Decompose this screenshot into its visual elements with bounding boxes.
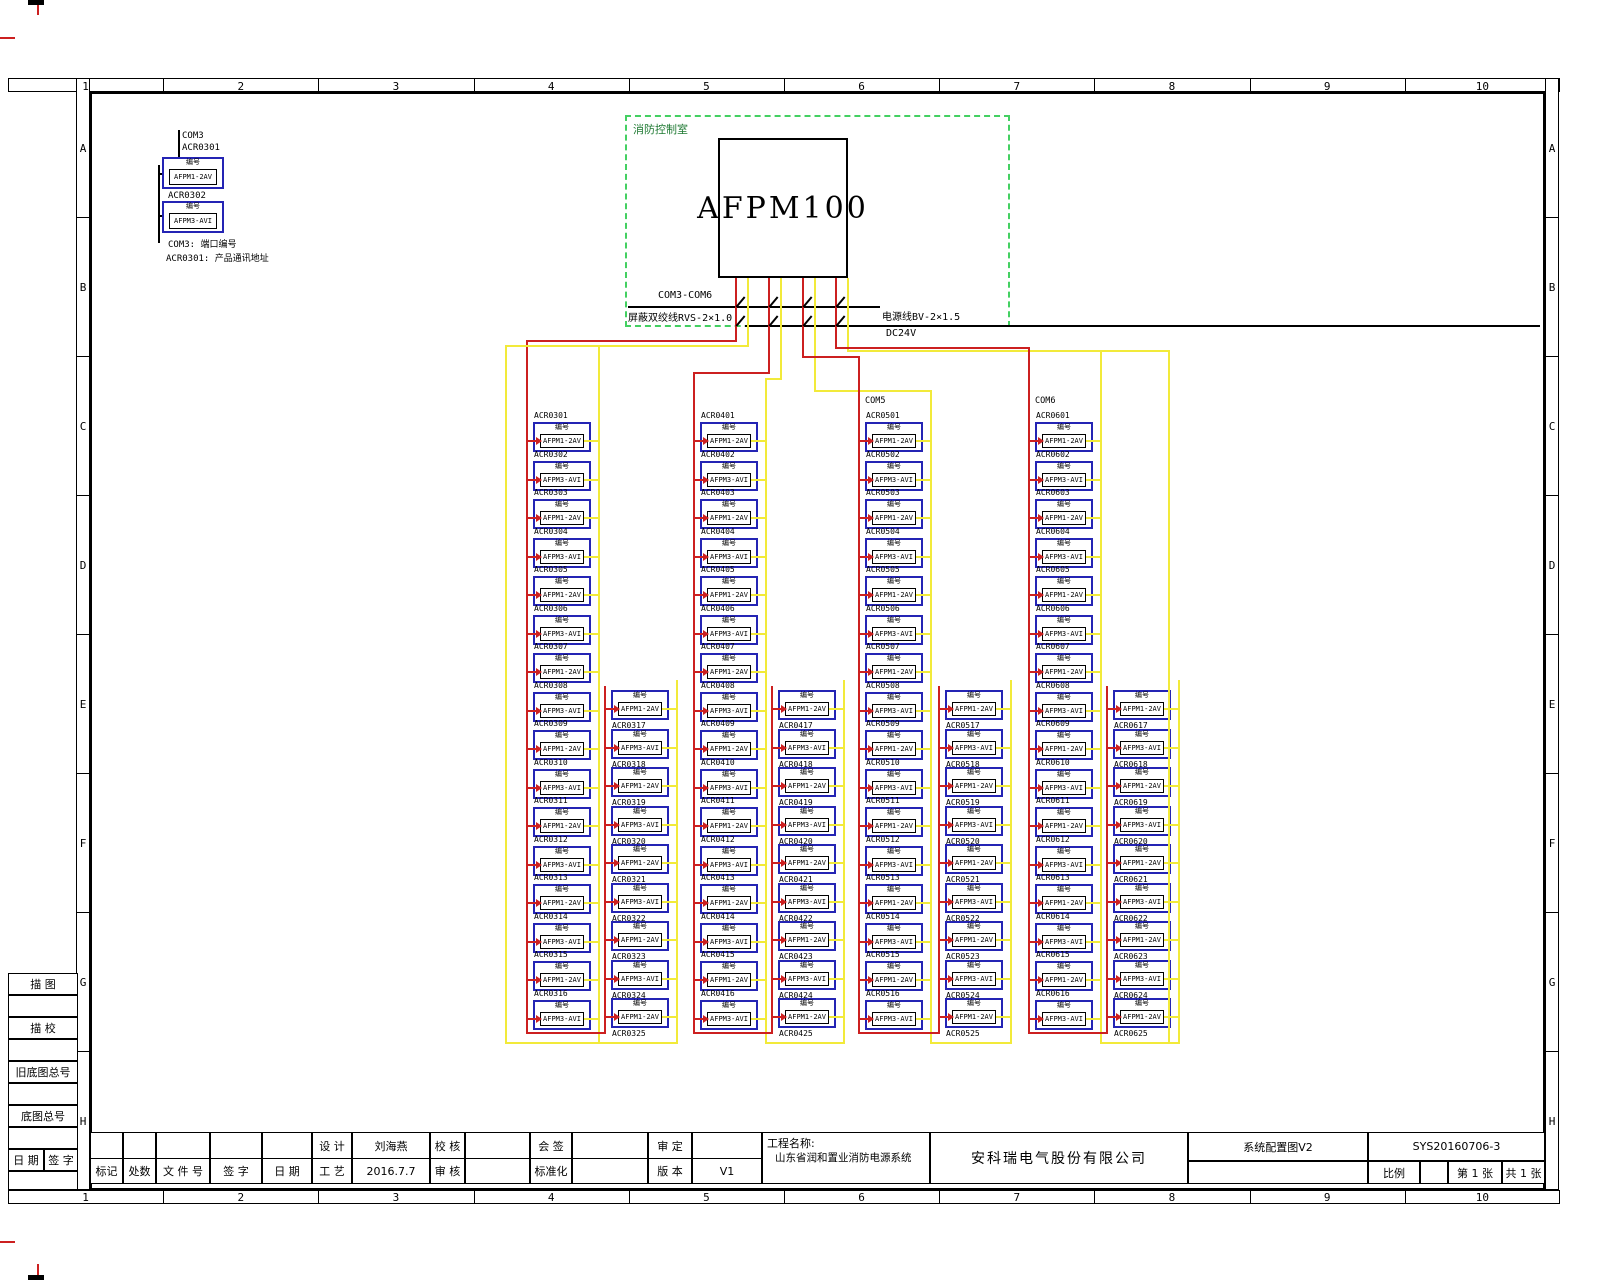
signal-arrowhead [703, 668, 709, 676]
title-block-cell: 审 定 [648, 1132, 692, 1159]
power-wire-segment [996, 1016, 1010, 1018]
device-id-label: ACR0308 [534, 681, 612, 691]
signal-wire-segment [735, 278, 737, 340]
device-model: AFPM1-2AV [872, 743, 916, 755]
power-wire-segment [584, 710, 598, 712]
device-model: AFPM3-AVI [872, 859, 916, 871]
legend-wire [158, 165, 160, 243]
signal-arrowhead [1038, 553, 1044, 561]
device-id-label: ACR0503 [866, 488, 944, 498]
legend: COM3 ACR0301 编号 AFPM1-2AV ACR0302 编号 AFP… [140, 125, 340, 260]
grid-number: 7 [939, 80, 1094, 92]
device-id-label: ACR0606 [1036, 604, 1114, 614]
grid-number: 4 [474, 80, 629, 92]
device-tag-label: 编号 [714, 1001, 744, 1010]
power-wire-segment [1164, 862, 1178, 864]
signal-wire-segment [802, 356, 860, 358]
device-model: AFPM1-2AV [540, 666, 584, 678]
device-id-label: ACR0604 [1036, 527, 1114, 537]
device-tag-label: 编号 [959, 691, 989, 700]
com-range-label: COM3-COM6 [658, 290, 712, 301]
device-model: AFPM1-2AV [785, 934, 829, 946]
control-room-label: 消防控制室 [633, 121, 688, 137]
grid-number: 7 [939, 1191, 1094, 1203]
device-model: AFPM1-2AV [1120, 934, 1164, 946]
signal-bus-line [628, 306, 880, 308]
grid-letter: D [1545, 559, 1559, 571]
power-wire-segment [1164, 708, 1178, 710]
legend-device-model: AFPM1-2AV [169, 171, 217, 183]
device-tag-label: 编号 [714, 847, 744, 856]
device-tag-label: 编号 [547, 616, 577, 625]
device-tag-label: 编号 [959, 730, 989, 739]
signal-arrowhead [868, 476, 874, 484]
power-wire-segment [662, 862, 676, 864]
device-model: AFPM3-AVI [1042, 1013, 1086, 1025]
device-tag-label: 编号 [714, 731, 744, 740]
title-block-cell: 校 核 [430, 1132, 465, 1159]
signal-arrowhead [868, 668, 874, 676]
signal-arrowhead [1116, 705, 1122, 713]
title-block-cell [262, 1132, 312, 1159]
device-tag-label: 编号 [879, 654, 909, 663]
grid-tick [318, 1190, 319, 1204]
grid-number: 6 [784, 1191, 939, 1203]
signal-wire-segment [526, 1032, 606, 1034]
device-model: AFPM1-2AV [707, 435, 751, 447]
device-model: AFPM1-2AV [952, 934, 996, 946]
signal-arrowhead [868, 437, 874, 445]
device-id-label: ACR0607 [1036, 642, 1114, 652]
grid-tick [1545, 356, 1559, 357]
signal-arrowhead [868, 976, 874, 984]
device-tag-label: 编号 [1127, 999, 1157, 1008]
device-model: AFPM1-2AV [540, 820, 584, 832]
signal-arrowhead [868, 591, 874, 599]
power-wire-segment [662, 978, 676, 980]
device-id-label: ACR0505 [866, 565, 944, 575]
grid-tick [163, 1190, 164, 1204]
signal-arrowhead [948, 744, 954, 752]
device-id-label: ACR0625 [1114, 1029, 1192, 1039]
power-wire-segment [1086, 941, 1100, 943]
grid-letter: G [1545, 976, 1559, 988]
device-model: AFPM1-2AV [872, 512, 916, 524]
device-id-label: ACR0425 [779, 1029, 857, 1039]
grid-tick [629, 78, 630, 92]
signal-arrowhead [1038, 938, 1044, 946]
title-block-cell: V1 [692, 1158, 762, 1184]
grid-tick [76, 912, 90, 913]
device-tag-label: 编号 [625, 961, 655, 970]
signal-arrowhead [703, 553, 709, 561]
device-id-label: ACR0312 [534, 835, 612, 845]
signal-arrowhead [614, 898, 620, 906]
power-wire-segment [916, 710, 930, 712]
legend-device-tag: 编号 [178, 202, 208, 211]
device-tag-label: 编号 [792, 730, 822, 739]
margin-field-cell: 描 图 [8, 973, 78, 995]
power-wire-segment [916, 440, 930, 442]
signal-arrowhead [614, 705, 620, 713]
power-wire-segment [1086, 517, 1100, 519]
grid-tick [1250, 1190, 1251, 1204]
signal-arrowhead [703, 437, 709, 445]
device-tag-label: 编号 [879, 885, 909, 894]
power-wire-segment [662, 1016, 676, 1018]
signal-arrowhead [1116, 898, 1122, 906]
signal-wire-segment [604, 686, 606, 1034]
device-id-label: ACR0507 [866, 642, 944, 652]
device-model: AFPM3-AVI [1042, 936, 1086, 948]
power-wire-segment [751, 440, 765, 442]
grid-tick [474, 1190, 475, 1204]
power-wire-segment [829, 901, 843, 903]
power-wire-segment [505, 345, 507, 1044]
power-wire-segment [584, 671, 598, 673]
print-mark [28, 1275, 44, 1280]
margin-field-cell [8, 1171, 78, 1190]
grid-letter: C [1545, 420, 1559, 432]
device-model: AFPM1-2AV [540, 974, 584, 986]
device-id-label: ACR0601 [1036, 411, 1114, 421]
grid-letter: D [76, 559, 90, 571]
device-tag-label: 编号 [879, 924, 909, 933]
power-wire-segment [751, 748, 765, 750]
power-wire-segment [996, 785, 1010, 787]
device-model: AFPM3-AVI [618, 973, 662, 985]
grid-tick [1094, 1190, 1095, 1204]
title-block-cell: 审 核 [430, 1158, 465, 1184]
signal-wire-segment [526, 340, 737, 342]
device-model: AFPM1-2AV [872, 820, 916, 832]
margin-field-cell [8, 1083, 78, 1105]
title-block-cell: 会 签 [530, 1132, 572, 1159]
signal-arrowhead [703, 938, 709, 946]
device-id-label: ACR0515 [866, 950, 944, 960]
power-wire-segment [847, 350, 1102, 352]
grid-tick [939, 78, 940, 92]
grid-letter: G [76, 976, 90, 988]
power-wire-segment [996, 939, 1010, 941]
device-id-label: ACR0411 [701, 796, 779, 806]
device-model: AFPM1-2AV [1042, 589, 1086, 601]
power-wire-segment [751, 979, 765, 981]
device-tag-label: 编号 [714, 770, 744, 779]
power-wire-segment [1086, 864, 1100, 866]
device-id-label: ACR0611 [1036, 796, 1114, 806]
device-tag-label: 编号 [792, 845, 822, 854]
power-wire-segment [751, 517, 765, 519]
power-wire-segment [751, 1018, 765, 1020]
signal-arrowhead [868, 822, 874, 830]
signal-arrowhead [536, 745, 542, 753]
device-tag-label: 编号 [879, 462, 909, 471]
power-wire-segment [1164, 901, 1178, 903]
device-tag-label: 编号 [792, 768, 822, 777]
device-tag-label: 编号 [625, 768, 655, 777]
title-block-cell [123, 1132, 156, 1159]
signal-arrowhead [1038, 591, 1044, 599]
device-tag-label: 编号 [959, 845, 989, 854]
signal-arrowhead [703, 899, 709, 907]
device-id-label: ACR0313 [534, 873, 612, 883]
power-wire-segment [505, 1042, 676, 1044]
device-model: AFPM3-AVI [952, 973, 996, 985]
power-wire-segment [916, 517, 930, 519]
signal-arrowhead [781, 859, 787, 867]
power-wire-segment [996, 747, 1010, 749]
device-tag-label: 编号 [714, 962, 744, 971]
device-id-label: ACR0413 [701, 873, 779, 883]
signal-arrowhead [948, 859, 954, 867]
device-tag-label: 编号 [547, 462, 577, 471]
power-wire-segment [751, 633, 765, 635]
device-model: AFPM3-AVI [540, 628, 584, 640]
signal-arrowhead [1116, 936, 1122, 944]
device-tag-label: 编号 [547, 423, 577, 432]
device-model: AFPM3-AVI [540, 782, 584, 794]
title-block-cell: SYS20160706-3 [1368, 1132, 1545, 1161]
power-wire-segment [584, 787, 598, 789]
signal-arrowhead [868, 938, 874, 946]
device-id-label: ACR0306 [534, 604, 612, 614]
power-wire-segment [1164, 978, 1178, 980]
device-id-label: ACR0603 [1036, 488, 1114, 498]
device-tag-label: 编号 [879, 770, 909, 779]
power-wire-segment [1086, 556, 1100, 558]
power-wire-segment [584, 825, 598, 827]
signal-arrowhead [1038, 707, 1044, 715]
signal-arrowhead [1116, 821, 1122, 829]
power-wire-segment [584, 633, 598, 635]
device-tag-label: 编号 [547, 847, 577, 856]
power-wire-segment [1010, 680, 1012, 1044]
device-tag-label: 编号 [792, 807, 822, 816]
device-model: AFPM3-AVI [1042, 859, 1086, 871]
legend-addr2-label: ACR0302 [168, 191, 206, 201]
device-id-label: ACR0305 [534, 565, 612, 575]
power-wire-segment [1086, 633, 1100, 635]
signal-arrowhead [536, 553, 542, 561]
power-wire-segment [662, 939, 676, 941]
device-model: AFPM1-2AV [1042, 820, 1086, 832]
signal-arrowhead [1116, 744, 1122, 752]
power-bus-line [745, 325, 1540, 327]
power-wire-segment [1086, 825, 1100, 827]
power-wire-segment [751, 710, 765, 712]
power-wire-segment [1086, 979, 1100, 981]
grid-letter: F [76, 837, 90, 849]
power-wire-segment [916, 633, 930, 635]
device-tag-label: 编号 [1049, 962, 1079, 971]
device-model: AFPM3-AVI [707, 859, 751, 871]
device-id-label: ACR0609 [1036, 719, 1114, 729]
registration-mark [0, 1241, 15, 1243]
power-voltage-label: DC24V [886, 328, 916, 339]
device-model: AFPM1-2AV [618, 934, 662, 946]
power-wire-segment [1086, 594, 1100, 596]
device-tag-label: 编号 [547, 577, 577, 586]
device-tag-label: 编号 [879, 808, 909, 817]
grid-tick [76, 495, 90, 496]
signal-arrowhead [703, 822, 709, 830]
grid-number: 3 [318, 1191, 473, 1203]
grid-number: 6 [784, 80, 939, 92]
signal-arrowhead [1116, 1013, 1122, 1021]
grid-tick [163, 78, 164, 92]
device-tag-label: 编号 [547, 693, 577, 702]
device-model: AFPM1-2AV [540, 512, 584, 524]
device-model: AFPM3-AVI [872, 551, 916, 563]
device-model: AFPM3-AVI [540, 474, 584, 486]
power-wire-segment [751, 787, 765, 789]
device-id-label: ACR0304 [534, 527, 612, 537]
device-id-label: ACR0309 [534, 719, 612, 729]
title-block-cell: 2016.7.7 [352, 1158, 430, 1184]
signal-arrowhead [1038, 514, 1044, 522]
signal-arrowhead [868, 514, 874, 522]
signal-arrowhead [1038, 437, 1044, 445]
grid-tick [318, 78, 319, 92]
device-id-label: ACR0401 [701, 411, 779, 421]
print-mark [28, 0, 44, 5]
device-id-label: ACR0406 [701, 604, 779, 614]
device-id-label: ACR0315 [534, 950, 612, 960]
device-model: AFPM1-2AV [1042, 435, 1086, 447]
power-wire-segment [814, 278, 816, 390]
power-wire-segment [598, 345, 749, 347]
power-wire-segment [916, 1018, 930, 1020]
device-tag-label: 编号 [1049, 1001, 1079, 1010]
device-model: AFPM1-2AV [707, 974, 751, 986]
power-wire-segment [751, 479, 765, 481]
power-wire-segment [847, 278, 849, 350]
device-model: AFPM3-AVI [952, 742, 996, 754]
signal-wire-segment [938, 686, 940, 1034]
signal-arrowhead [536, 784, 542, 792]
device-model: AFPM1-2AV [1042, 743, 1086, 755]
power-wire-segment [1100, 350, 1168, 352]
power-wire-segment [584, 556, 598, 558]
device-model: AFPM1-2AV [618, 780, 662, 792]
device-model: AFPM3-AVI [540, 859, 584, 871]
power-wire-segment [1164, 824, 1178, 826]
legend-device-model: AFPM3-AVI [169, 215, 217, 227]
power-wire-segment [829, 862, 843, 864]
signal-arrowhead [948, 782, 954, 790]
device-model: AFPM1-2AV [1042, 666, 1086, 678]
device-tag-label: 编号 [625, 999, 655, 1008]
afpm100-host-box: AFPM100 [718, 138, 848, 278]
margin-field-cell: 签 字 [44, 1149, 78, 1171]
signal-arrowhead [703, 861, 709, 869]
device-model: AFPM1-2AV [540, 743, 584, 755]
device-tag-label: 编号 [1049, 847, 1079, 856]
signal-arrowhead [536, 630, 542, 638]
device-tag-label: 编号 [792, 961, 822, 970]
signal-arrowhead [536, 668, 542, 676]
device-tag-label: 编号 [1049, 654, 1079, 663]
power-wire-segment [751, 556, 765, 558]
device-model: AFPM3-AVI [785, 742, 829, 754]
signal-arrowhead [536, 707, 542, 715]
device-model: AFPM1-2AV [785, 780, 829, 792]
device-model: AFPM3-AVI [785, 819, 829, 831]
power-wire-segment [765, 1042, 845, 1044]
signal-arrowhead [1038, 668, 1044, 676]
device-model: AFPM1-2AV [872, 589, 916, 601]
device-tag-label: 编号 [959, 999, 989, 1008]
power-wire-segment [584, 440, 598, 442]
device-tag-label: 编号 [879, 1001, 909, 1010]
device-tag-label: 编号 [714, 924, 744, 933]
title-block-cell [1188, 1161, 1368, 1184]
device-model: AFPM3-AVI [1042, 474, 1086, 486]
device-id-label: ACR0605 [1036, 565, 1114, 575]
device-model: AFPM1-2AV [1042, 974, 1086, 986]
grid-letter: B [76, 281, 90, 293]
device-tag-label: 编号 [1049, 500, 1079, 509]
device-id-label: ACR0307 [534, 642, 612, 652]
signal-wire-segment [693, 372, 695, 1034]
device-model: AFPM1-2AV [952, 780, 996, 792]
device-model: AFPM1-2AV [540, 589, 584, 601]
power-wire-segment [751, 864, 765, 866]
power-wire-segment [751, 594, 765, 596]
device-model: AFPM1-2AV [1042, 512, 1086, 524]
device-id-label: ACR0412 [701, 835, 779, 845]
power-wire-segment [916, 671, 930, 673]
device-model: AFPM1-2AV [952, 703, 996, 715]
device-model: AFPM3-AVI [707, 551, 751, 563]
device-model: AFPM1-2AV [618, 703, 662, 715]
power-wire-segment [829, 708, 843, 710]
power-wire-segment [584, 748, 598, 750]
signal-arrowhead [948, 975, 954, 983]
device-tag-label: 编号 [1049, 693, 1079, 702]
power-wire-segment [1168, 350, 1170, 1044]
device-tag-label: 编号 [1049, 885, 1079, 894]
power-wire-segment [996, 978, 1010, 980]
device-model: AFPM3-AVI [707, 474, 751, 486]
grid-tick [1545, 773, 1559, 774]
signal-arrowhead [1116, 859, 1122, 867]
title-block-cell: 刘海燕 [352, 1132, 430, 1159]
power-wire-segment [584, 479, 598, 481]
device-model: AFPM1-2AV [872, 974, 916, 986]
device-tag-label: 编号 [1049, 924, 1079, 933]
power-wire-segment [1086, 710, 1100, 712]
device-id-label: ACR0302 [534, 450, 612, 460]
grid-letter: C [76, 420, 90, 432]
power-wire-segment [662, 785, 676, 787]
signal-arrowhead [703, 476, 709, 484]
grid-number: 2 [163, 1191, 318, 1203]
power-wire-segment [916, 556, 930, 558]
grid-tick [1405, 78, 1406, 92]
device-id-label: ACR0510 [866, 758, 944, 768]
device-model: AFPM1-2AV [707, 589, 751, 601]
margin-field-cell: 底图总号 [8, 1105, 78, 1127]
device-tag-label: 编号 [714, 693, 744, 702]
device-model: AFPM3-AVI [1120, 742, 1164, 754]
title-block-cell [572, 1158, 648, 1184]
signal-arrowhead [703, 707, 709, 715]
power-wire-segment [829, 824, 843, 826]
signal-arrowhead [703, 514, 709, 522]
device-tag-label: 编号 [547, 539, 577, 548]
